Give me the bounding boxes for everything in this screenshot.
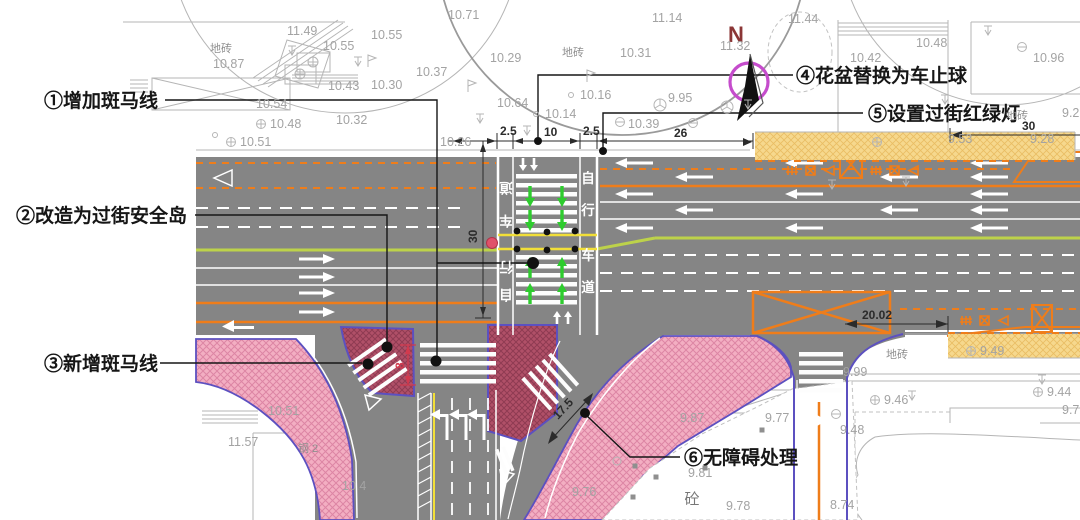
elevation-value: 9.28 — [1030, 132, 1054, 146]
elevation-value: 9.78 — [726, 499, 750, 513]
elevation-value: 9.7 — [1062, 403, 1079, 417]
elevation-value: 10.96 — [1033, 51, 1064, 65]
elevation-value: 10.64 — [497, 96, 528, 110]
elevation-value: 10.48 — [916, 36, 947, 50]
plot-square — [631, 495, 636, 500]
elevation-value: 10.48 — [270, 117, 301, 131]
elevation-value: 10.42 — [850, 51, 881, 65]
label-new-zebra: ③新增斑马线 — [44, 352, 158, 375]
plot-square — [654, 475, 659, 480]
survey-marker-oplus — [871, 396, 880, 405]
dim-crossing-length: 30 — [466, 229, 480, 243]
elevation-value: 9.95 — [668, 91, 692, 105]
elevation-value: 10.30 — [371, 78, 402, 92]
elevation-value: 10.54 — [256, 97, 287, 111]
elevation-value: 10.39 — [628, 117, 659, 131]
elevation-value: 9.2 — [1062, 106, 1079, 120]
paving-label-1: 地砖 — [210, 41, 232, 55]
bike-right-char-2: 行 — [580, 202, 595, 218]
elevation-value: 10.29 — [490, 51, 521, 65]
bike-right-char-4: 道 — [581, 279, 595, 295]
steel-label: 钢 2 — [298, 442, 318, 455]
dim-gap: 20.02 — [862, 308, 892, 322]
plot-square — [760, 428, 765, 433]
elevation-value: 10.31 — [620, 46, 651, 60]
elevation-value: 9.99 — [843, 365, 867, 379]
label-bollards: ④花盆替换为车止球 — [796, 64, 968, 87]
survey-marker-oplus — [1034, 388, 1043, 397]
dim-south-crossing: 8 — [393, 362, 407, 369]
elevation-value: 10.14 — [545, 107, 576, 121]
survey-symbol-oplus — [873, 138, 882, 147]
elevation-value: 9.81 — [688, 466, 712, 480]
paving-label-4: 地砖 — [886, 347, 908, 361]
elevation-value: 10.55 — [323, 39, 354, 53]
dim-bike-left: 2.5 — [500, 124, 517, 138]
elevation-value: 11.57 — [228, 435, 258, 449]
elevation-value: 10.26 — [440, 135, 471, 149]
bike-right-char-3: 车 — [581, 247, 595, 263]
site-plan: 2.5 10 2.5 26 30 30 20.02 17.5 8 — [0, 0, 1080, 520]
dim-crossing-width: 10 — [544, 125, 558, 139]
elevation-value: 10.4 — [342, 479, 366, 493]
elevation-value: 9.53 — [948, 132, 972, 146]
elevation-value: 11.14 — [652, 11, 682, 25]
dim-road-east: 26 — [674, 126, 688, 140]
bike-left-char-1: 道 — [499, 180, 513, 196]
survey-marker-oplus — [227, 138, 236, 147]
survey-marker-oplus — [967, 347, 976, 356]
elevation-value: 10.51 — [240, 135, 271, 149]
elevation-value: 9.87 — [680, 411, 704, 425]
site-plan-svg: 2.5 10 2.5 26 30 30 20.02 17.5 8 — [0, 0, 1080, 520]
elevation-value: 9.49 — [980, 344, 1004, 358]
elevation-value: 8.74 — [830, 498, 854, 512]
plot-square — [633, 464, 638, 469]
elevation-value: 10.55 — [371, 28, 402, 42]
elevation-value: 11.32 — [720, 39, 750, 53]
signal-dot — [487, 238, 498, 249]
elevation-value: 10.37 — [416, 65, 447, 79]
concrete-label: 砼 — [684, 491, 699, 508]
bike-left-char-3: 行 — [499, 259, 514, 275]
paving-label-2: 地砖 — [562, 45, 584, 59]
elevation-value: 9.48 — [840, 423, 864, 437]
elevation-value: 10.16 — [580, 88, 611, 102]
elevation-value: 11.44 — [788, 12, 818, 26]
label-signal: ⑤设置过街红绿灯 — [868, 102, 1020, 125]
elevation-value: 9.44 — [1047, 385, 1071, 399]
elevation-value: 9.46 — [884, 393, 908, 407]
plot-square — [703, 466, 708, 471]
elevation-value: 9.77 — [765, 411, 789, 425]
elevation-value: 10.71 — [448, 8, 479, 22]
elevation-value: 10.51 — [268, 404, 299, 418]
label-add-zebra: ①增加斑马线 — [44, 89, 158, 112]
survey-marker-oplus — [257, 120, 266, 129]
elevation-value: 10.87 — [213, 57, 244, 71]
paving-label-3: 地砖 — [1006, 108, 1028, 122]
bike-left-char-2: 车 — [499, 213, 513, 229]
bike-left-char-4: 自 — [499, 287, 513, 303]
elevation-value: 9.76 — [572, 485, 596, 499]
elevation-value: 10.43 — [328, 79, 359, 93]
elevation-value: 10.32 — [336, 113, 367, 127]
label-safety-island: ②改造为过街安全岛 — [16, 204, 187, 227]
dim-bike-right: 2.5 — [583, 124, 600, 138]
elevation-value: 11.49 — [287, 24, 317, 38]
bike-right-char-1: 自 — [581, 170, 595, 186]
